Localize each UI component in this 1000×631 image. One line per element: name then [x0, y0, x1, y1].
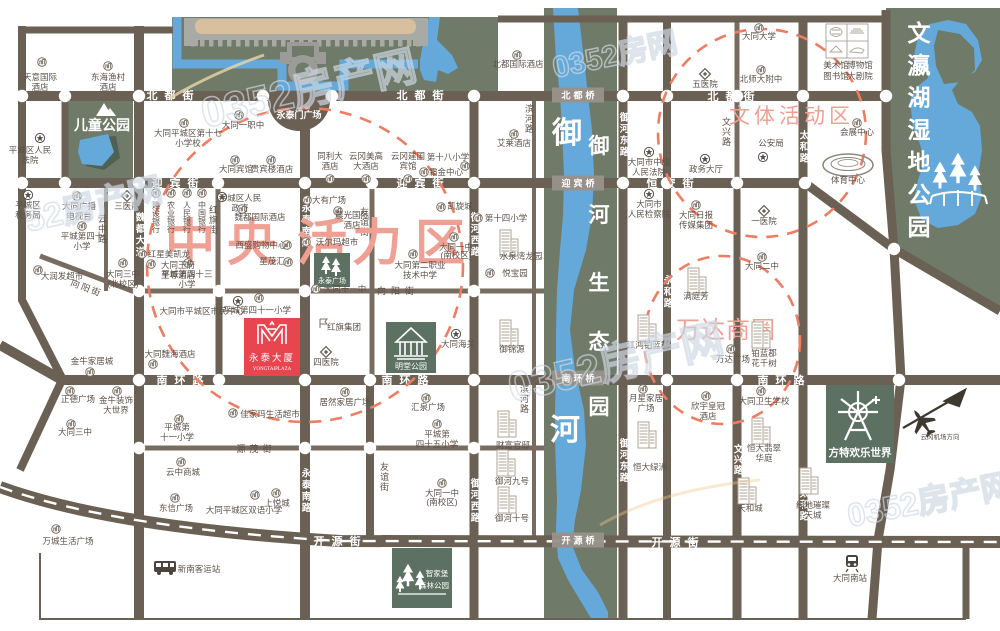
- svg-text:公安局: 公安局: [758, 138, 784, 148]
- svg-text:平城第: 平城第: [424, 429, 450, 439]
- svg-text:永泰南路: 永泰南路: [300, 467, 313, 514]
- svg-text:方特欢乐世界: 方特欢乐世界: [829, 446, 892, 459]
- svg-text:大同宾馆: 大同宾馆: [219, 164, 253, 174]
- svg-text:御河九号: 御河九号: [495, 476, 529, 486]
- svg-text:欣宇皇冠: 欣宇皇冠: [691, 401, 726, 411]
- svg-text:东海渔村: 东海渔村: [91, 72, 126, 82]
- svg-text:广场: 广场: [637, 403, 654, 413]
- svg-text:滨河路: 滨河路: [524, 103, 534, 134]
- svg-text:水泉湾龙园: 水泉湾龙园: [500, 251, 543, 261]
- svg-text:南环路: 南环路: [758, 373, 812, 387]
- svg-text:体育中心: 体育中心: [831, 175, 866, 185]
- svg-text:大同海关: 大同海关: [441, 339, 476, 349]
- svg-text:技术中学: 技术中学: [403, 270, 438, 280]
- svg-text:开源街: 开源街: [652, 535, 706, 549]
- svg-text:儿童公园: 儿童公园: [73, 117, 130, 133]
- svg-text:五医院: 五医院: [692, 79, 718, 89]
- svg-text:御: 御: [588, 134, 610, 158]
- svg-text:大同平城区双语小学: 大同平城区双语小学: [206, 505, 283, 515]
- svg-text:红星美凯龙: 红星美凯龙: [148, 249, 191, 259]
- svg-text:恒大绿洲: 恒大绿洲: [633, 462, 667, 472]
- svg-text:人民检察院: 人民检察院: [628, 209, 671, 219]
- svg-text:酒店: 酒店: [699, 411, 717, 421]
- svg-text:御河东路: 御河东路: [618, 111, 631, 158]
- svg-text:云冈建国: 云冈建国: [391, 151, 425, 161]
- svg-text:迎宾桥: 迎宾桥: [561, 178, 597, 189]
- svg-text:酒店: 酒店: [99, 82, 117, 92]
- svg-text:悦宝园: 悦宝园: [502, 268, 528, 278]
- svg-text:华庭: 华庭: [755, 453, 773, 463]
- svg-text:大世界: 大世界: [103, 405, 129, 415]
- svg-text:平城第: 平城第: [164, 422, 190, 432]
- svg-text:法院: 法院: [21, 155, 39, 165]
- svg-text:天和城: 天和城: [737, 503, 763, 513]
- svg-text:政务大厅: 政务大厅: [689, 164, 724, 174]
- svg-text:大同二中: 大同二中: [745, 261, 779, 271]
- svg-text:传媒集团: 传媒集团: [679, 220, 713, 230]
- svg-text:云中商城: 云中商城: [166, 467, 201, 477]
- svg-text:大同魏海酒店: 大同魏海酒店: [144, 349, 196, 359]
- svg-text:园: 园: [908, 214, 931, 240]
- svg-text:文兴路: 文兴路: [732, 443, 745, 475]
- svg-text:凯旋城: 凯旋城: [447, 201, 473, 211]
- svg-text:贵宾楼酒店: 贵宾楼酒店: [251, 164, 294, 174]
- svg-text:河: 河: [589, 204, 610, 227]
- svg-text:铂蓝郡: 铂蓝郡: [751, 348, 777, 358]
- svg-text:第十八小学: 第十八小学: [427, 152, 470, 162]
- svg-text:御: 御: [551, 117, 582, 150]
- svg-text:财富官邸: 财富官邸: [496, 440, 531, 450]
- svg-text:正德广场: 正德广场: [61, 394, 95, 404]
- svg-text:第十四小学: 第十四小学: [485, 213, 528, 223]
- svg-text:小学校: 小学校: [175, 138, 201, 148]
- svg-text:平城第四十: 平城第四十: [61, 231, 104, 241]
- svg-text:永泰大厦: 永泰大厦: [249, 352, 295, 364]
- svg-text:居然家居广场: 居然家居广场: [319, 397, 370, 407]
- svg-text:绿地璀璨: 绿地璀璨: [796, 500, 831, 510]
- svg-text:公: 公: [908, 182, 931, 208]
- svg-text:大同市中级: 大同市中级: [628, 157, 671, 167]
- svg-text:中国银行: 中国银行: [198, 200, 207, 234]
- svg-text:金牛家居城: 金牛家居城: [71, 356, 114, 366]
- svg-text:魏都国际酒店: 魏都国际酒店: [234, 212, 286, 222]
- svg-text:新南客运站: 新南客运站: [178, 564, 221, 574]
- svg-text:大润发超市: 大润发超市: [41, 271, 84, 281]
- svg-text:智家堡: 智家堡: [426, 568, 449, 578]
- svg-text:大有广场: 大有广场: [312, 195, 346, 205]
- svg-text:大同市: 大同市: [636, 199, 662, 209]
- svg-text:北都街: 北都街: [708, 89, 762, 103]
- svg-text:酒店: 酒店: [321, 161, 339, 171]
- svg-text:北都国际酒店: 北都国际酒店: [492, 59, 544, 69]
- svg-text:瀛: 瀛: [908, 52, 931, 78]
- svg-text:晨光国际: 晨光国际: [335, 210, 370, 220]
- svg-text:人民银行: 人民银行: [183, 201, 192, 234]
- svg-text:湿: 湿: [908, 117, 931, 143]
- svg-text:西盛购物中心: 西盛购物中心: [235, 240, 287, 250]
- svg-text:小学: 小学: [73, 241, 91, 251]
- svg-text:月星家居: 月星家居: [629, 393, 663, 403]
- svg-text:人民法院: 人民法院: [632, 167, 667, 177]
- svg-text:农业银行: 农业银行: [167, 200, 176, 234]
- svg-text:沃尔玛超市: 沃尔玛超市: [316, 237, 359, 247]
- svg-text:大同王府: 大同王府: [161, 260, 196, 270]
- svg-text:会展中心: 会展中心: [840, 127, 875, 137]
- svg-text:大酒店: 大酒店: [353, 161, 379, 171]
- svg-text:汇泉广场: 汇泉广场: [411, 402, 445, 412]
- svg-text:金牛装饰: 金牛装饰: [99, 395, 134, 405]
- svg-text:森林公园: 森林公园: [419, 580, 449, 590]
- svg-text:园: 园: [589, 396, 610, 419]
- svg-text:湖: 湖: [908, 85, 931, 111]
- svg-text:云冈美高: 云冈美高: [349, 151, 383, 161]
- svg-text:文体活动区: 文体活动区: [729, 105, 854, 128]
- svg-text:御锦源: 御锦源: [499, 344, 525, 354]
- svg-text:红旗集团: 红旗集团: [327, 322, 361, 332]
- svg-text:天意国际: 天意国际: [23, 72, 58, 82]
- svg-text:四十五小学: 四十五小学: [416, 439, 459, 449]
- svg-text:平城第四十一小学: 平城第四十一小学: [223, 305, 292, 315]
- svg-text:向阳街: 向阳街: [377, 285, 419, 296]
- svg-text:北都桥: 北都桥: [561, 90, 597, 101]
- svg-text:博物馆: 博物馆: [847, 60, 873, 70]
- svg-text:星茂汇: 星茂汇: [259, 256, 285, 266]
- svg-text:御河十号: 御河十号: [495, 513, 529, 523]
- svg-text:开源桥: 开源桥: [561, 535, 597, 546]
- svg-text:御河东路: 御河东路: [618, 437, 631, 484]
- svg-text:大同三中: 大同三中: [106, 269, 140, 279]
- svg-text:大剧院: 大剧院: [847, 71, 873, 81]
- svg-text:地: 地: [908, 149, 931, 175]
- svg-text:YONGTAIPLAZA: YONGTAIPLAZA: [253, 367, 292, 372]
- svg-text:万城生活广场: 万城生活广场: [42, 536, 93, 546]
- svg-text:天城: 天城: [804, 510, 822, 520]
- svg-text:十一小学: 十一小学: [160, 432, 195, 442]
- svg-text:四医院: 四医院: [313, 357, 339, 367]
- svg-text:图书馆: 图书馆: [823, 71, 849, 81]
- svg-text:宾馆: 宾馆: [399, 161, 416, 171]
- svg-text:(南校区): (南校区): [426, 497, 457, 507]
- svg-text:御河西路: 御河西路: [469, 477, 482, 524]
- svg-text:源茂街: 源茂街: [236, 443, 275, 454]
- svg-text:大同十一中: 大同十一中: [324, 284, 367, 294]
- svg-text:太和路: 太和路: [798, 129, 811, 164]
- svg-text:艾莱酒店: 艾莱酒店: [497, 138, 532, 148]
- svg-text:平城区人民: 平城区人民: [9, 145, 52, 155]
- svg-text:美术馆: 美术馆: [823, 60, 849, 70]
- svg-text:(南校区): (南校区): [440, 250, 471, 260]
- svg-text:河: 河: [550, 414, 580, 447]
- svg-text:满庭芳: 满庭芳: [683, 291, 709, 301]
- svg-text:恒大翡翠: 恒大翡翠: [747, 443, 782, 453]
- svg-text:一医院: 一医院: [751, 216, 777, 226]
- svg-text:恒安街: 恒安街: [647, 176, 701, 190]
- svg-text:至尊酒店: 至尊酒店: [161, 270, 196, 280]
- svg-text:北师大附中: 北师大附中: [740, 74, 783, 84]
- svg-text:文: 文: [908, 20, 932, 46]
- svg-text:花千树: 花千树: [751, 358, 777, 368]
- svg-text:大同第二职业: 大同第二职业: [394, 260, 445, 270]
- svg-text:明堂公园: 明堂公园: [395, 361, 427, 371]
- svg-text:酒店: 酒店: [343, 220, 361, 230]
- svg-text:同利大: 同利大: [317, 151, 343, 161]
- svg-text:平城区人民: 平城区人民: [219, 193, 262, 203]
- svg-text:东信广场: 东信广场: [159, 503, 193, 513]
- svg-text:大同大学: 大同大学: [742, 31, 777, 41]
- svg-text:佳家玛生活超市: 佳家玛生活超市: [240, 409, 300, 419]
- svg-text:大同南站: 大同南站: [833, 573, 868, 583]
- svg-text:(北校区): (北校区): [107, 279, 138, 289]
- svg-text:大同日报: 大同日报: [679, 210, 714, 220]
- svg-text:开源街: 开源街: [314, 534, 368, 548]
- svg-text:酒店: 酒店: [31, 82, 49, 92]
- svg-text:小学: 小学: [178, 279, 196, 289]
- svg-text:生: 生: [589, 271, 610, 295]
- svg-text:友谊街: 友谊街: [379, 461, 389, 492]
- svg-text:霜金中心: 霜金中心: [429, 167, 464, 177]
- svg-text:云冈机场方向: 云冈机场方向: [921, 432, 960, 441]
- svg-text:大同三中: 大同三中: [58, 427, 92, 437]
- svg-text:大同卫生学校: 大同卫生学校: [738, 396, 790, 406]
